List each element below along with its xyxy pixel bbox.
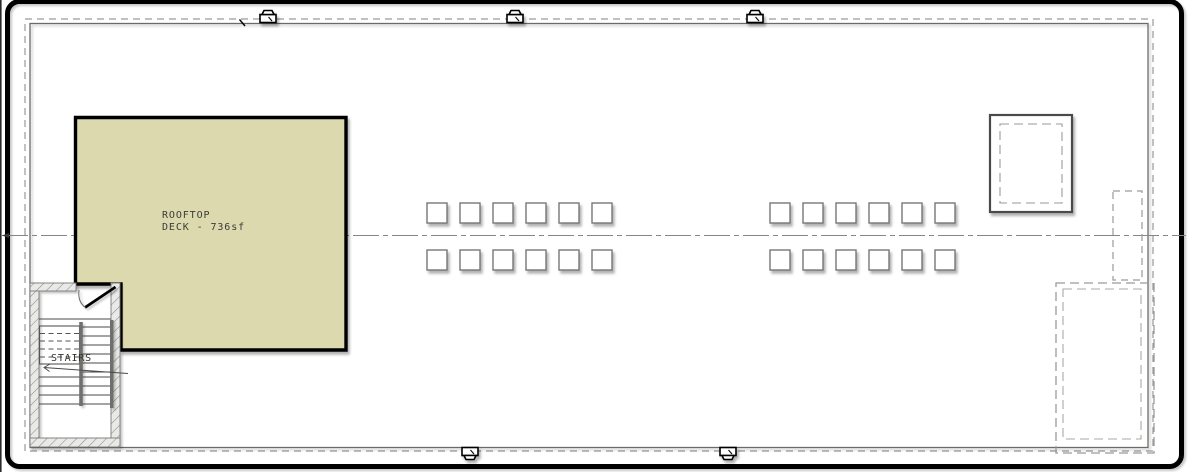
- stair-enclosure: STAIRS: [30, 283, 128, 447]
- stairs-label: STAIRS: [51, 353, 92, 364]
- skylight: [770, 250, 790, 270]
- skylight: [869, 203, 889, 223]
- skylight-grid: [427, 203, 955, 270]
- skylight: [902, 250, 922, 270]
- skylight: [493, 203, 513, 223]
- skylight: [803, 250, 823, 270]
- skylight: [460, 203, 480, 223]
- parapet-tick-mark: [240, 20, 246, 27]
- below-structure-outlines: [1056, 191, 1154, 453]
- skylight: [526, 250, 546, 270]
- roof-plan-sheet: ROOFTOP DECK - 736sf: [0, 0, 1188, 472]
- skylight: [836, 250, 856, 270]
- skylight: [869, 250, 889, 270]
- door-swing-arc: [79, 290, 86, 308]
- deck-label-line1: ROOFTOP: [162, 210, 210, 221]
- roof-vent-icon: [462, 448, 478, 460]
- skylight: [836, 203, 856, 223]
- roof-vent-icon: [747, 11, 763, 23]
- skylight: [770, 203, 790, 223]
- deck-label-line2: DECK - 736sf: [162, 222, 245, 233]
- roof-vent-icon: [720, 448, 736, 460]
- roof-plan-drawing: ROOFTOP DECK - 736sf: [0, 0, 1188, 472]
- skylight: [460, 250, 480, 270]
- roof-hatch-equipment: [990, 115, 1072, 212]
- skylight: [526, 203, 546, 223]
- below-outline-large-inner: [1063, 289, 1141, 439]
- stair-walls: [30, 283, 120, 447]
- roof-vent-icon: [260, 11, 276, 23]
- skylight: [902, 203, 922, 223]
- skylight: [935, 250, 955, 270]
- skylight: [592, 203, 612, 223]
- skylight: [427, 203, 447, 223]
- stair-door: [79, 287, 116, 308]
- below-outline-large-outer: [1056, 283, 1154, 453]
- roof-vent-icon: [507, 11, 523, 23]
- skylight: [427, 250, 447, 270]
- skylight: [559, 250, 579, 270]
- skylight: [592, 250, 612, 270]
- skylight: [935, 203, 955, 223]
- skylight: [493, 250, 513, 270]
- skylight: [559, 203, 579, 223]
- skylight: [803, 203, 823, 223]
